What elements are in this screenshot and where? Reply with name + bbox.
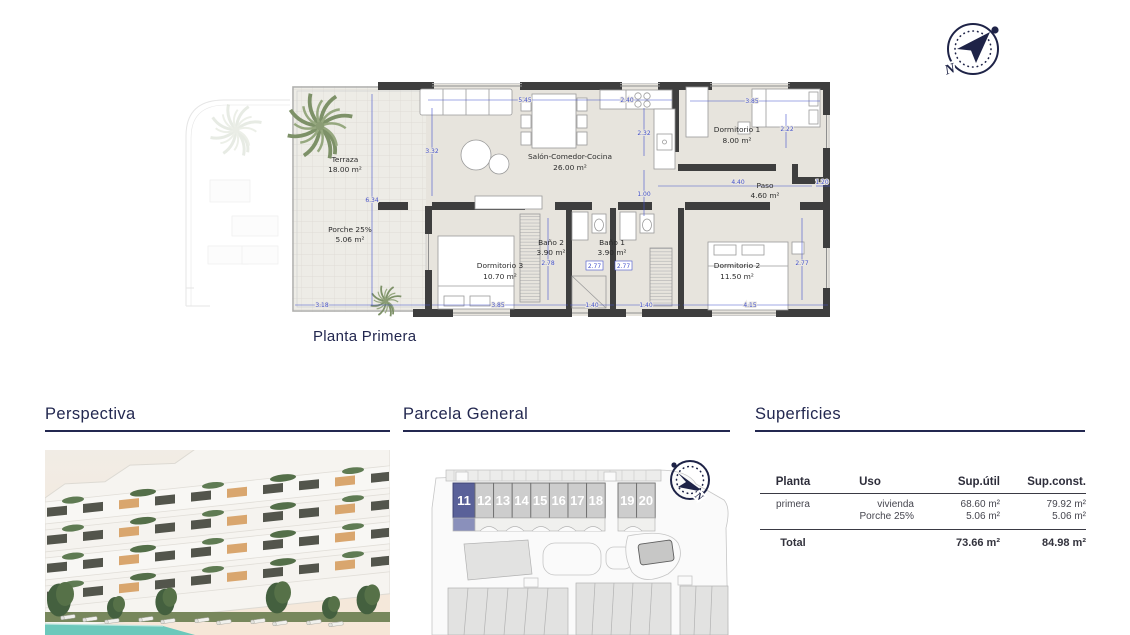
unit-number: 17 bbox=[570, 493, 584, 508]
dim-label: 1.20 bbox=[815, 179, 829, 186]
room-area: 3.90 m² bbox=[598, 248, 627, 257]
cell-uso: vivienda bbox=[826, 499, 928, 511]
room-area: 18.00 m² bbox=[328, 165, 362, 174]
brochure-page: { "floorplan": { "title": "Planta Primer… bbox=[0, 0, 1130, 635]
room-area: 11.50 m² bbox=[720, 272, 754, 281]
perspectiva-heading: Perspectiva bbox=[45, 405, 136, 424]
room-name: Paso bbox=[756, 181, 774, 190]
site-plan: 11 12 13 14 15 16 17 18 19 20 bbox=[428, 448, 735, 635]
unit-row: 11 12 13 14 15 16 17 18 19 20 bbox=[453, 483, 655, 518]
room-area: 8.00 m² bbox=[723, 136, 752, 145]
unit-number: 15 bbox=[533, 493, 547, 508]
floor-plan: 5.45 2.40 3.32 2.32 3.85 2.22 4.40 1.20 … bbox=[180, 78, 835, 330]
room-area: 10.70 m² bbox=[483, 272, 517, 281]
parcela-heading: Parcela General bbox=[403, 405, 528, 424]
table-row: Porche 25% 5.06 m² 5.06 m² bbox=[760, 511, 1086, 523]
north-arrow-icon bbox=[957, 32, 990, 63]
perspectiva-underline bbox=[45, 430, 390, 432]
room-area: 4.60 m² bbox=[751, 191, 780, 200]
superficies-table: Planta Uso Sup.útil Sup.const. primera v… bbox=[760, 476, 1086, 549]
room-name: Dormitorio 1 bbox=[714, 125, 761, 134]
dim-label: 4.15 bbox=[743, 302, 757, 309]
superficies-heading: Superficies bbox=[755, 405, 841, 424]
unit-number: 20 bbox=[639, 493, 653, 508]
total-label: Total bbox=[760, 537, 826, 549]
room-name: Terraza bbox=[331, 155, 359, 164]
dim-label: 2.32 bbox=[637, 130, 651, 137]
dim-label: 4.40 bbox=[731, 179, 745, 186]
dim-label: 2.78 bbox=[541, 260, 555, 267]
dim-label: 6.34 bbox=[365, 197, 379, 204]
dim-label: 1.40 bbox=[585, 302, 599, 309]
room-name: Salón-Comedor-Cocina bbox=[528, 152, 612, 161]
compass-icon: N bbox=[938, 12, 1010, 84]
dim-label: 2.77 bbox=[795, 260, 809, 267]
room-area: 5.06 m² bbox=[336, 235, 365, 244]
table-body: primera vivienda 68.60 m² 79.92 m² Porch… bbox=[760, 494, 1086, 530]
room-name: Dormitorio 3 bbox=[477, 261, 524, 270]
cell-const: 79.92 m² bbox=[1004, 499, 1086, 511]
dim-label: 3.32 bbox=[425, 148, 439, 155]
perspective-render bbox=[45, 450, 390, 635]
col-header-sup-const: Sup.const. bbox=[1004, 476, 1086, 493]
neighbour-unit-outline bbox=[186, 100, 290, 306]
cell-const: 5.06 m² bbox=[1004, 511, 1086, 523]
compass-north-label: N bbox=[942, 61, 958, 79]
table-total-row: Total 73.66 m² 84.98 m² bbox=[760, 530, 1086, 549]
unit-number: 13 bbox=[496, 493, 510, 508]
superficies-underline bbox=[755, 430, 1085, 432]
unit-number: 14 bbox=[514, 493, 529, 508]
cell-util: 68.60 m² bbox=[928, 499, 1004, 511]
room-name: Porche 25% bbox=[328, 225, 372, 234]
dim-label: 3.85 bbox=[745, 98, 759, 105]
total-const: 84.98 m² bbox=[1004, 537, 1086, 549]
col-header-sup-util: Sup.útil bbox=[928, 476, 1004, 493]
unit-number: 18 bbox=[589, 493, 603, 508]
dim-label: 2.77 bbox=[617, 263, 631, 270]
community-pool bbox=[638, 540, 675, 566]
col-header-uso: Uso bbox=[826, 476, 928, 493]
dim-label: 2.22 bbox=[780, 126, 794, 133]
parcela-underline bbox=[403, 430, 730, 432]
unit-number: 11 bbox=[457, 493, 471, 508]
dim-label: 3.18 bbox=[315, 302, 329, 309]
table-row: primera vivienda 68.60 m² 79.92 m² bbox=[760, 499, 1086, 511]
unit-number: 16 bbox=[551, 493, 565, 508]
cell-planta: primera bbox=[760, 499, 826, 511]
floor-plan-caption: Planta Primera bbox=[313, 328, 416, 345]
dim-label: 1.40 bbox=[639, 302, 653, 309]
col-header-planta: Planta bbox=[760, 476, 826, 493]
unit-number: 12 bbox=[477, 493, 491, 508]
unit-number: 19 bbox=[620, 493, 634, 508]
total-util: 73.66 m² bbox=[928, 537, 1004, 549]
table-header-row: Planta Uso Sup.útil Sup.const. bbox=[760, 476, 1086, 494]
cell-util: 5.06 m² bbox=[928, 511, 1004, 523]
room-name: Baño 2 bbox=[538, 238, 564, 247]
dim-label: 1.00 bbox=[637, 191, 651, 198]
dim-label: 3.85 bbox=[491, 302, 505, 309]
cell-uso: Porche 25% bbox=[826, 511, 928, 523]
room-area: 26.00 m² bbox=[553, 163, 587, 172]
room-area: 3.90 m² bbox=[537, 248, 566, 257]
room-name: Dormitorio 2 bbox=[714, 261, 760, 270]
dim-label: 5.45 bbox=[518, 97, 532, 104]
room-name: Baño 1 bbox=[599, 238, 625, 247]
dim-label: 2.77 bbox=[588, 263, 602, 270]
dim-label: 2.40 bbox=[620, 97, 634, 104]
